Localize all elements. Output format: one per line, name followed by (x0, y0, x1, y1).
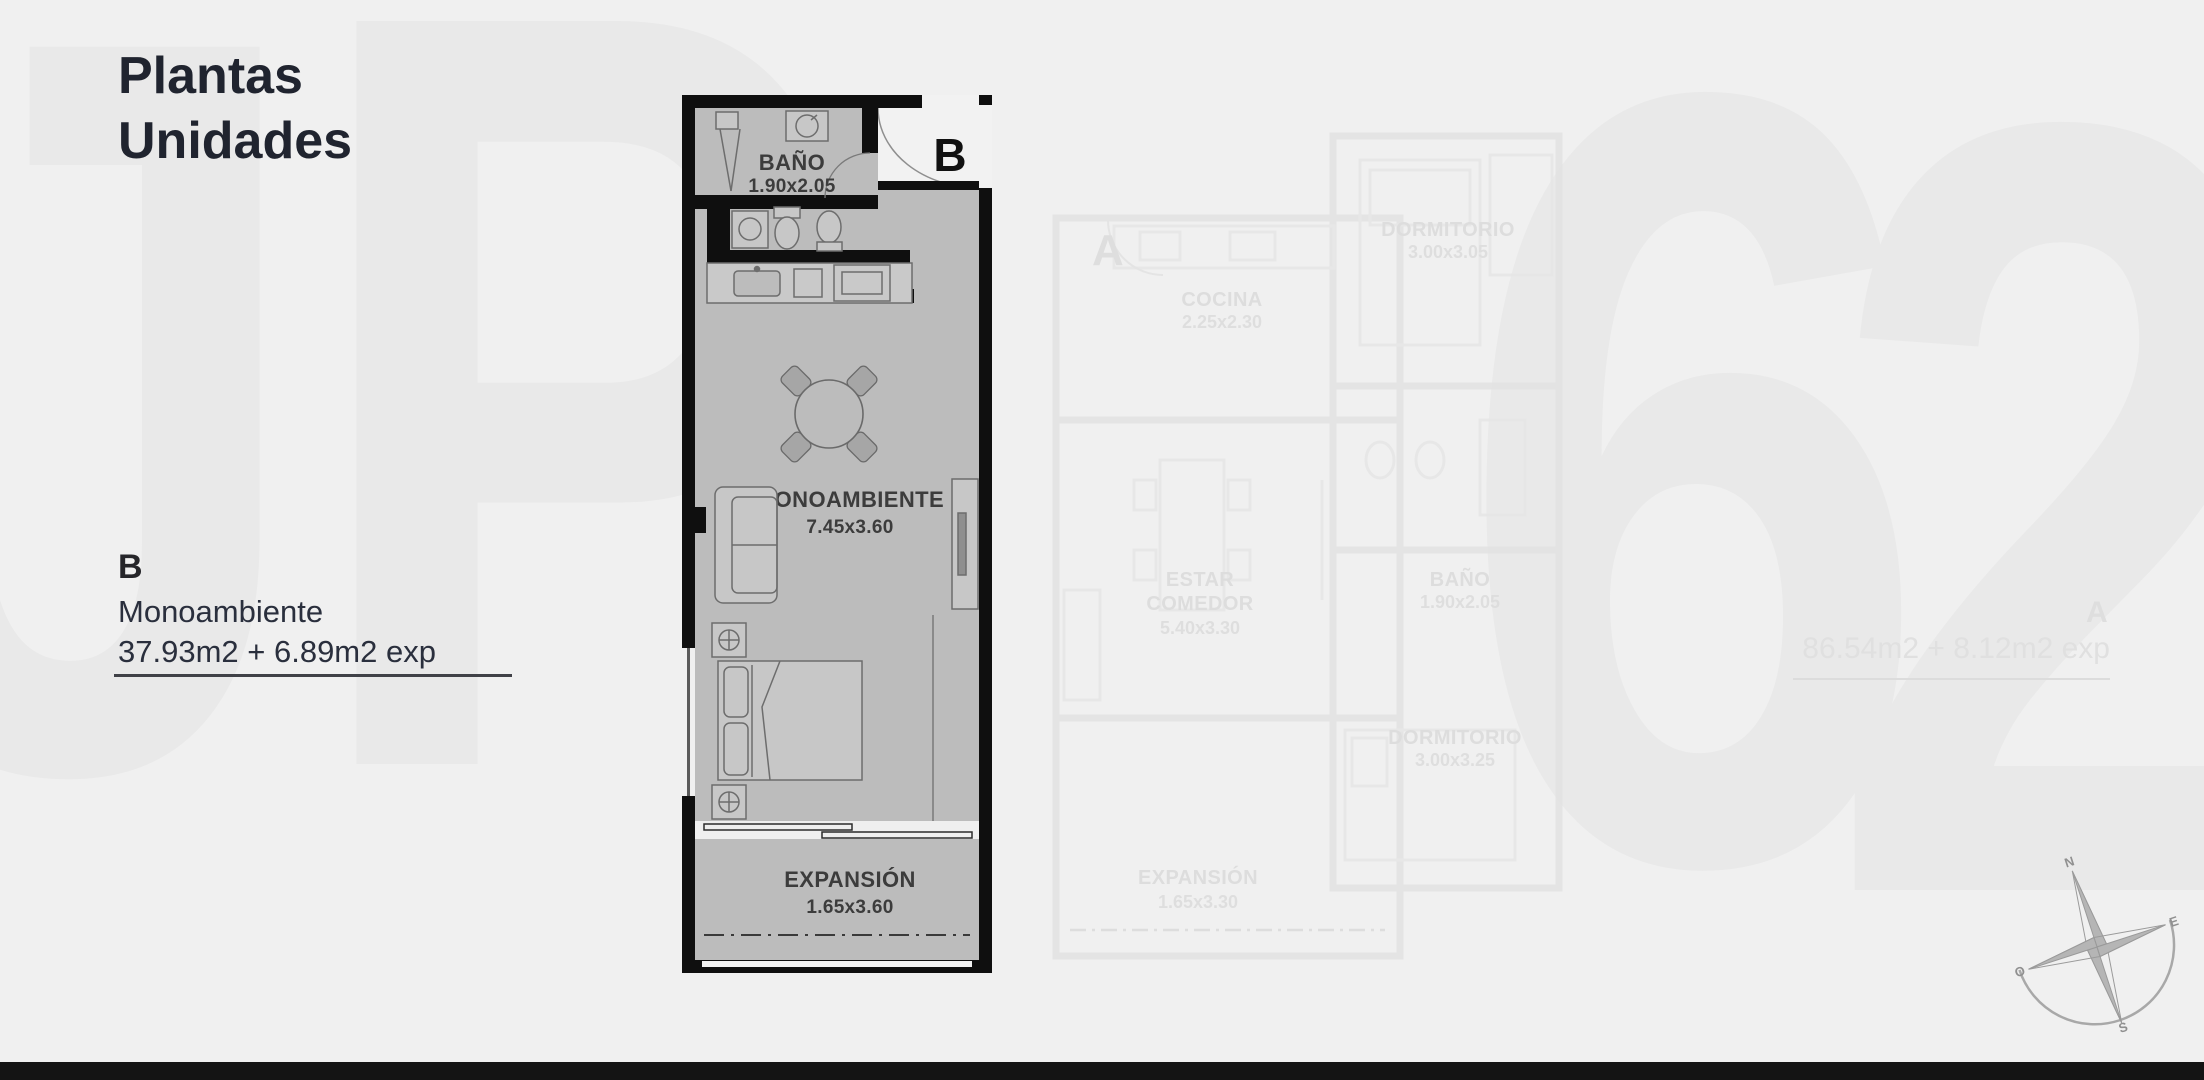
table-icon (795, 380, 863, 448)
sofa-icon (715, 487, 777, 603)
floor-plans-page: J P 6 2 Plantas Unidades B Monoambiente … (0, 0, 2204, 1080)
compass-e-label: E (2167, 913, 2180, 930)
ghost-label-dormitorio-1: DORMITORIO (1381, 219, 1515, 241)
bed-icon (718, 661, 862, 780)
page-title-line2: Unidades (118, 109, 352, 174)
ghost-label-dormitorio-2: DORMITORIO (1388, 727, 1522, 749)
window-icon (682, 643, 695, 801)
unit-b-summary: B Monoambiente 37.93m2 + 6.89m2 exp (118, 550, 436, 670)
ghost-label-estar-1: ESTAR (1166, 569, 1234, 591)
unit-a-underline (1793, 678, 2110, 680)
room-dims-expansion: 1.65x3.60 (806, 897, 893, 918)
unit-a-id: A (2086, 596, 2108, 630)
sink-icon (734, 271, 780, 296)
kitchenette (707, 263, 912, 303)
ghost-label-bano: BAÑO (1430, 568, 1491, 591)
ghost-dims-dormitorio-2: 3.00x3.25 (1415, 750, 1495, 770)
compass-s-label: S (2117, 1019, 2130, 1036)
entry-door: B (878, 95, 992, 190)
ghost-dims-bano: 1.90x2.05 (1420, 592, 1500, 612)
compass-icon: N E S O (2010, 852, 2185, 1037)
ghost-dims-expansion: 1.65x3.30 (1158, 892, 1238, 912)
room-dims-bano: 1.90x2.05 (748, 176, 835, 197)
ghost-dims-cocina: 2.25x2.30 (1182, 312, 1262, 332)
room-label-bano: BAÑO (759, 150, 825, 175)
ghost-dims-dormitorio-1: 3.00x3.05 (1408, 242, 1488, 262)
ghost-label-cocina: COCINA (1181, 289, 1262, 311)
page-title-line1: Plantas (118, 44, 352, 109)
floor-plan-unit-b-drawing: B (682, 95, 992, 973)
compass-o-label: O (2013, 963, 2027, 980)
unit-b-area: 37.93m2 + 6.89m2 exp (118, 634, 436, 670)
unit-b-id: B (118, 550, 436, 584)
unit-b-underline (114, 674, 512, 677)
floor-plan-unit-a-ghost[interactable]: A COCINA 2.25x2.30 DORMITORIO 3.00x3.05 … (1050, 130, 1565, 960)
ghost-dims-estar: 5.40x3.30 (1160, 618, 1240, 638)
room-label-expansion: EXPANSIÓN (784, 867, 916, 892)
unit-b-name: Monoambiente (118, 594, 436, 630)
tv-unit-icon (952, 479, 978, 609)
room-dims-monoambiente: 7.45x3.60 (806, 517, 893, 538)
unit-b-door-label: B (933, 129, 966, 181)
page-title: Plantas Unidades (118, 44, 352, 174)
railing-line (702, 961, 972, 967)
unit-a-door-label: A (1092, 226, 1124, 275)
compass-n-label: N (2063, 853, 2077, 870)
bidet-icon (817, 211, 841, 243)
floor-plan-unit-b[interactable]: B (682, 95, 992, 973)
footer-bar (0, 1062, 2204, 1080)
floor-plan-unit-a-drawing: A COCINA 2.25x2.30 DORMITORIO 3.00x3.05 … (1050, 130, 1565, 960)
sliding-door-icon (695, 821, 979, 839)
ghost-label-estar-2: COMEDOR (1146, 593, 1253, 615)
room-label-monoambiente: MONOAMBIENTE (756, 487, 944, 512)
ghost-label-expansion: EXPANSIÓN (1138, 865, 1258, 889)
unit-a-area: 86.54m2 + 8.12m2 exp (1795, 632, 2110, 666)
washbasin-icon (732, 211, 768, 248)
shower-icon (716, 112, 738, 129)
